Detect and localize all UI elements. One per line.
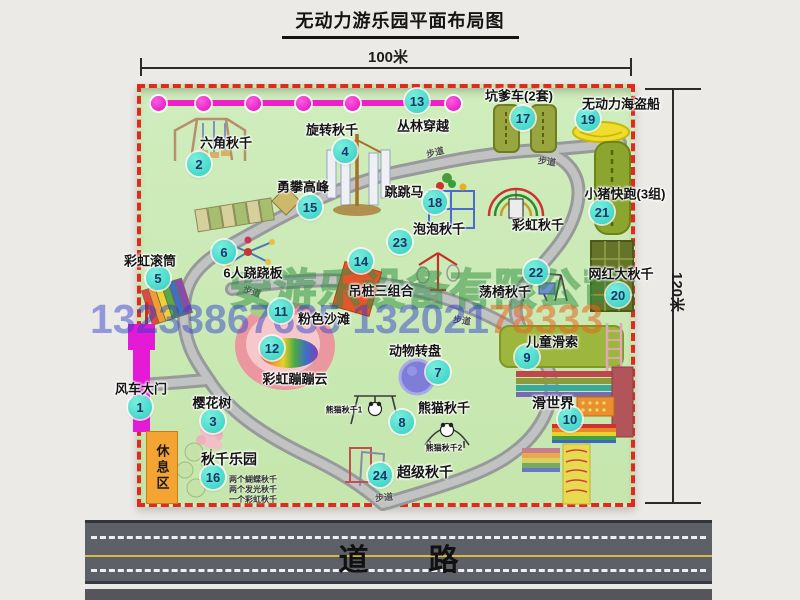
attraction-number: 7 — [426, 360, 450, 384]
walkway-label: 步道 — [537, 153, 557, 168]
dim-tick-left — [140, 58, 142, 76]
attraction-number: 2 — [187, 152, 211, 176]
attraction-number: 14 — [349, 249, 373, 273]
attraction-label: 小猪快跑(3组) — [585, 184, 666, 203]
dim-line-horizontal — [141, 67, 632, 69]
attraction-label: 旋转秋千 — [306, 120, 358, 139]
dim-tick-top — [645, 88, 701, 90]
attraction-number: 13 — [405, 89, 429, 113]
attraction-label: 儿童滑索 — [526, 332, 578, 351]
park-layout-map: 无动力游乐园平面布局图 100米 120米 — [0, 0, 800, 600]
attraction-number: 24 — [368, 463, 392, 487]
attraction-number: 4 — [333, 139, 357, 163]
dim-tick-bottom — [645, 502, 701, 504]
attraction-label: 滑世界 — [532, 393, 574, 413]
attraction-label: 网红大秋千 — [588, 264, 653, 283]
attraction-number: 5 — [146, 266, 170, 290]
map-label: 熊猫秋千2 — [426, 443, 462, 454]
attraction-label: 彩虹滚筒 — [124, 251, 176, 270]
attraction-number: 6 — [212, 240, 236, 264]
attraction-number: 22 — [524, 260, 548, 284]
road-label: 道 路 — [85, 535, 712, 579]
attraction-number: 21 — [590, 200, 614, 224]
swing-park-note: 一个彩虹秋千 — [229, 494, 277, 505]
attraction-number: 3 — [201, 409, 225, 433]
map-label: 彩虹秋千 — [512, 215, 564, 234]
jungle-crossing-ball — [196, 96, 211, 111]
attraction-number: 1 — [128, 395, 152, 419]
jungle-crossing-ball — [151, 96, 166, 111]
rest-area-box: 休息区 — [146, 431, 178, 504]
attraction-label: 樱花树 — [192, 393, 231, 412]
attraction-label: 风车大门 — [115, 379, 167, 398]
attraction-label: 粉色沙滩 — [298, 309, 350, 328]
attraction-label: 超级秋千 — [397, 462, 453, 482]
attraction-number: 15 — [298, 195, 322, 219]
road: 道 路 — [85, 520, 712, 584]
attraction-label: 跳跳马 — [384, 182, 423, 201]
attraction-number: 17 — [511, 106, 535, 130]
attraction-number: 11 — [269, 299, 293, 323]
jungle-crossing-ball — [296, 96, 311, 111]
attraction-number: 18 — [423, 190, 447, 214]
attraction-label: 无动力海盗船 — [582, 94, 660, 113]
walkway-label: 步道 — [374, 490, 393, 505]
attraction-number: 12 — [260, 336, 284, 360]
attraction-label: 荡椅秋千 — [479, 282, 531, 301]
jungle-crossing-ball — [446, 96, 461, 111]
attraction-label: 丛林穿越 — [397, 116, 449, 135]
attraction-label: 六角秋千 — [200, 133, 252, 152]
dim-width-label: 100米 — [368, 46, 408, 67]
attraction-label: 泡泡秋千 — [413, 219, 465, 238]
jungle-crossing-ball — [246, 96, 261, 111]
attraction-number: 23 — [388, 230, 412, 254]
attraction-label: 6人跷跷板 — [223, 263, 282, 282]
attraction-label: 秋千乐园 — [201, 449, 257, 469]
attraction-label: 坑爹车(2套) — [485, 86, 553, 105]
attraction-label: 吊桩三组合 — [348, 281, 413, 300]
title-wrap: 无动力游乐园平面布局图 — [0, 7, 800, 39]
attraction-label: 动物转盘 — [389, 341, 441, 360]
page-title: 无动力游乐园平面布局图 — [282, 7, 519, 39]
road-bottom-shadow — [85, 589, 712, 600]
dim-height-label: 120米 — [667, 272, 688, 312]
attraction-label: 彩虹蹦蹦云 — [262, 369, 327, 388]
dim-tick-right — [630, 58, 632, 76]
attraction-label: 勇攀高峰 — [277, 177, 329, 196]
jungle-crossing-ball — [345, 96, 360, 111]
attraction-number: 8 — [390, 410, 414, 434]
attraction-label: 熊猫秋千 — [418, 398, 470, 417]
attraction-number: 20 — [606, 283, 630, 307]
map-label: 熊猫秋千1 — [326, 405, 362, 416]
